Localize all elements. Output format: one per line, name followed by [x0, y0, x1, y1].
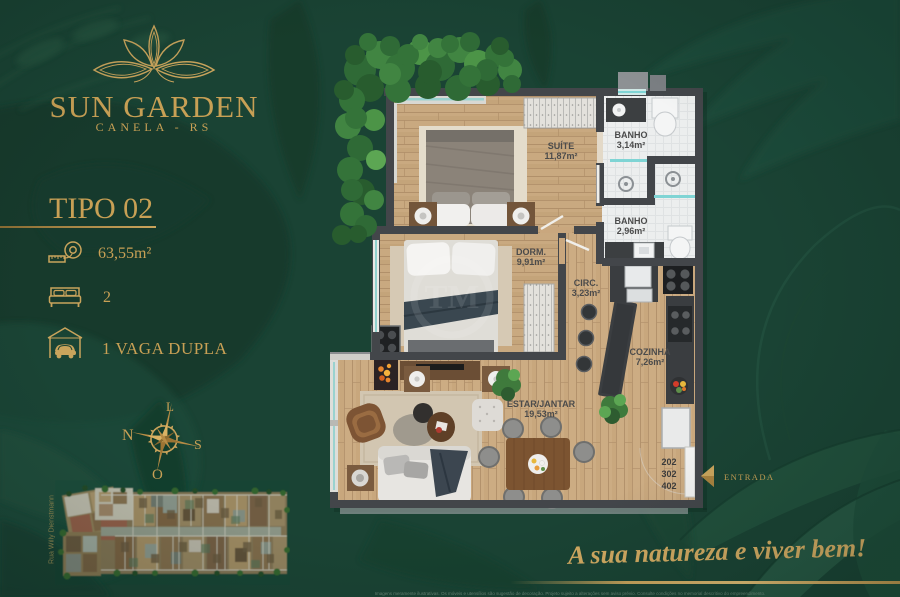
svg-text:TM: TM	[425, 279, 480, 316]
